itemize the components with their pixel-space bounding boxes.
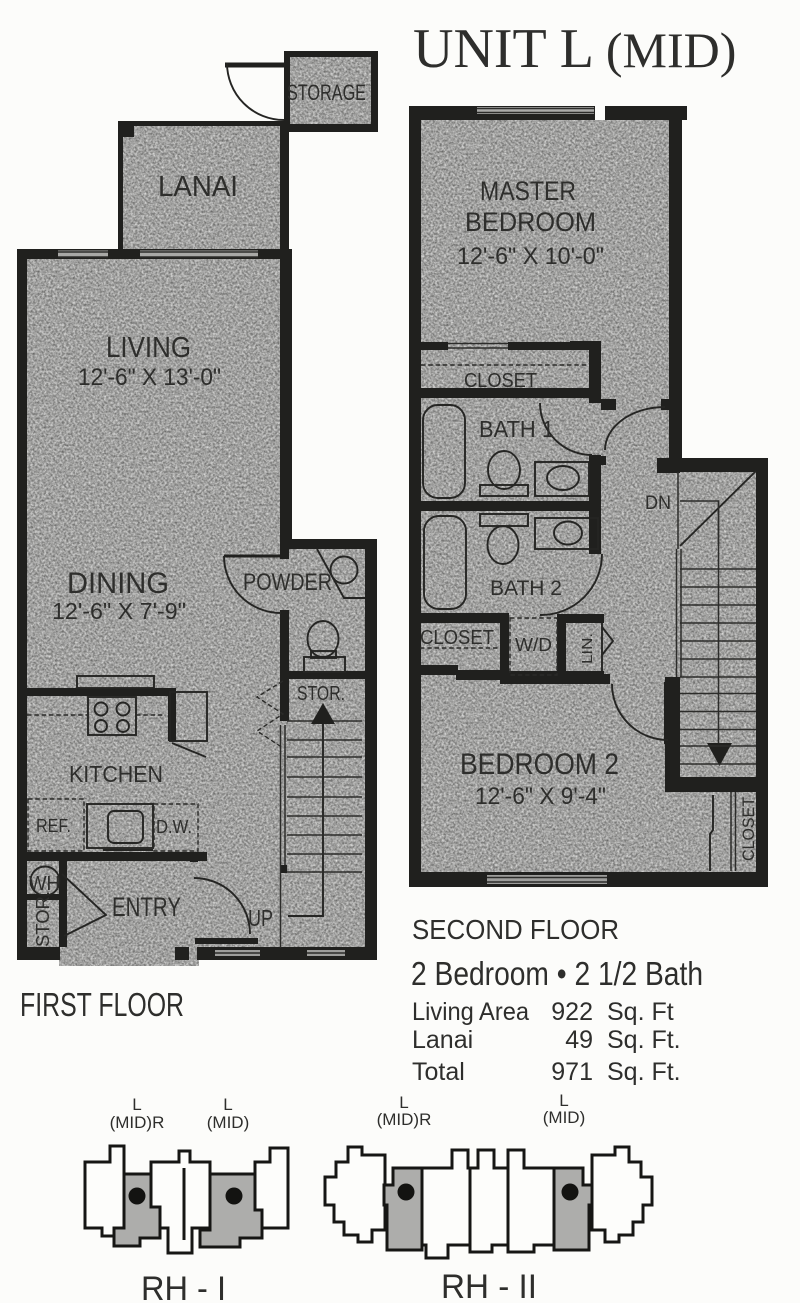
svg-text:LIVING: LIVING: [106, 332, 191, 364]
svg-text:BEDROOM 2: BEDROOM 2: [460, 748, 619, 781]
svg-text:(MID)R: (MID)R: [110, 1113, 165, 1132]
svg-text:STOR.: STOR.: [297, 683, 345, 705]
svg-text:(MID)R: (MID)R: [377, 1110, 432, 1129]
svg-text:RH - I: RH - I: [141, 1270, 226, 1303]
svg-text:POWDER: POWDER: [243, 569, 332, 596]
svg-text:STOR.: STOR.: [33, 891, 53, 947]
svg-text:KITCHEN: KITCHEN: [69, 761, 163, 787]
svg-text:LIN.: LIN.: [579, 633, 596, 664]
svg-text:BEDROOM: BEDROOM: [465, 207, 596, 237]
svg-text:CLOSET: CLOSET: [739, 797, 758, 861]
svg-text:12'-6" X 10'-0": 12'-6" X 10'-0": [457, 243, 604, 270]
svg-text:DINING: DINING: [67, 567, 169, 600]
svg-text:49: 49: [565, 1026, 593, 1054]
svg-text:BATH 2: BATH 2: [490, 577, 562, 600]
svg-text:FIRST FLOOR: FIRST FLOOR: [20, 986, 184, 1023]
svg-text:(MID): (MID): [543, 1108, 585, 1127]
svg-text:Sq. Ft.: Sq. Ft.: [607, 1058, 681, 1086]
svg-text:12'-6" X 7'-9": 12'-6" X 7'-9": [52, 598, 186, 624]
svg-text:CLOSET: CLOSET: [464, 370, 537, 392]
svg-text:Lanai: Lanai: [412, 1026, 473, 1054]
svg-text:Sq. Ft: Sq. Ft: [607, 998, 674, 1026]
svg-text:Sq. Ft.: Sq. Ft.: [607, 1026, 681, 1054]
svg-text:12'-6" X 13'-0": 12'-6" X 13'-0": [78, 364, 221, 391]
svg-text:L: L: [223, 1095, 232, 1114]
svg-text:UP: UP: [248, 905, 273, 931]
svg-text:971: 971: [551, 1058, 593, 1086]
svg-text:L: L: [132, 1095, 141, 1114]
svg-text:CLOSET: CLOSET: [420, 627, 494, 649]
svg-text:RH - II: RH - II: [441, 1268, 537, 1303]
svg-text:ENTRY: ENTRY: [112, 892, 181, 922]
svg-text:SECOND FLOOR: SECOND FLOOR: [412, 914, 619, 945]
svg-text:D.W.: D.W.: [156, 816, 192, 837]
svg-text:922: 922: [551, 998, 593, 1026]
svg-text:UNIT L (MID): UNIT L (MID): [413, 18, 736, 80]
svg-text:BATH 1: BATH 1: [479, 416, 554, 442]
svg-text:Total: Total: [412, 1058, 465, 1086]
svg-text:12'-6" X 9'-4": 12'-6" X 9'-4": [475, 783, 606, 810]
svg-text:2 Bedroom • 2 1/2 Bath: 2 Bedroom • 2 1/2 Bath: [411, 955, 703, 992]
svg-text:Living Area: Living Area: [412, 998, 529, 1026]
svg-text:STORAGE: STORAGE: [287, 80, 366, 105]
svg-text:DN: DN: [645, 493, 671, 514]
svg-text:MASTER: MASTER: [480, 176, 576, 206]
svg-text:REF.: REF.: [36, 815, 71, 836]
svg-text:(MID): (MID): [207, 1113, 249, 1132]
svg-text:W/D: W/D: [515, 635, 552, 655]
svg-text:LANAI: LANAI: [158, 171, 238, 203]
